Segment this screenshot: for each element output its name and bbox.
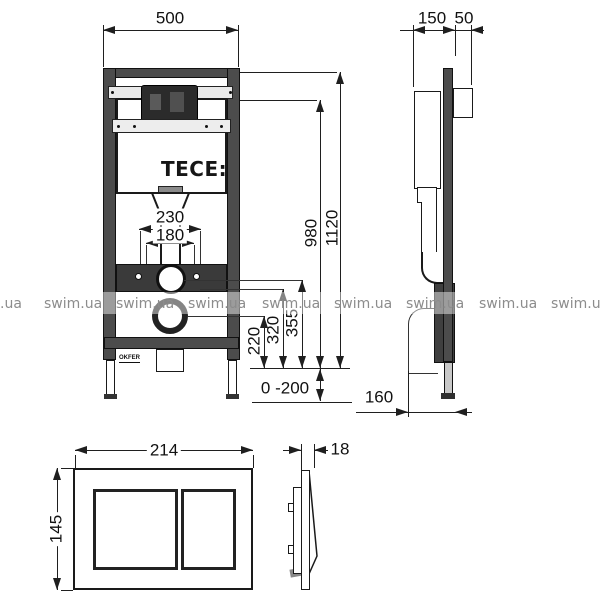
wall-bracket-box xyxy=(453,88,473,118)
arrowhead-left-icon xyxy=(314,446,326,454)
extension-line xyxy=(253,455,254,468)
cistern-neck xyxy=(417,187,437,203)
foot-plate xyxy=(104,394,117,399)
extension-line xyxy=(184,280,302,281)
watermark-text: swim.ua xyxy=(406,296,464,312)
watermark-text: swim.ua xyxy=(188,296,246,312)
flush-mechanism-detail xyxy=(150,94,161,110)
watermark-text: swim.ua xyxy=(116,296,174,312)
frame-left-rail xyxy=(103,68,116,360)
extension-line xyxy=(301,444,302,470)
frame-bottom-bar xyxy=(104,337,239,349)
foot-plate xyxy=(441,393,455,399)
brand-logo: TECE: xyxy=(161,157,227,181)
adjustable-leg-side xyxy=(444,362,453,395)
fixing-bolt-hole xyxy=(193,273,200,280)
arrowhead-up-icon xyxy=(336,72,344,84)
arrowhead-up-icon xyxy=(316,369,324,381)
arrowhead-down-icon xyxy=(260,356,268,368)
arrowhead-left-icon xyxy=(103,26,115,34)
dim-depth-label: 150 xyxy=(418,10,446,27)
screw-dot xyxy=(220,125,223,128)
fixing-bolt-hole xyxy=(135,273,142,280)
arrowhead-down-icon xyxy=(316,389,324,401)
extension-line xyxy=(200,289,283,290)
dim-plate-width-label: 214 xyxy=(147,442,181,459)
arrowhead-right-icon xyxy=(226,26,238,34)
dim-fixing-outer-label: 230 xyxy=(153,209,187,226)
arrowhead-up-icon xyxy=(298,280,306,292)
dim-width-label: 500 xyxy=(156,10,184,27)
dim-plate-height-label: 145 xyxy=(48,512,65,546)
adjustable-leg-left xyxy=(106,360,115,396)
arrowhead-down-icon xyxy=(279,356,287,368)
dim-upper-height-label: 980 xyxy=(303,219,320,247)
extension-line xyxy=(413,25,414,87)
dim-base-depth-label: 160 xyxy=(365,389,393,406)
extension-line xyxy=(61,590,73,591)
arrowhead-up-icon xyxy=(316,100,324,112)
reference-line xyxy=(250,368,350,369)
extension-line xyxy=(188,316,264,317)
frame-top-bar xyxy=(103,68,240,78)
screw-dot xyxy=(133,125,136,128)
extension-line xyxy=(408,371,409,417)
flush-pipe-side xyxy=(421,202,437,252)
certification-mark: OKFER xyxy=(119,355,140,363)
dim-front-offset-label: 50 xyxy=(455,10,474,27)
extension-line xyxy=(471,25,472,85)
extension-line xyxy=(61,468,73,469)
dim-fixing-inner-label: 180 xyxy=(153,227,187,244)
flush-mechanism-detail xyxy=(170,92,184,112)
arrowhead-down-icon xyxy=(298,356,306,368)
extension-line xyxy=(238,25,239,67)
dim-plate-thickness-label: 18 xyxy=(331,441,350,458)
extension-line xyxy=(75,455,76,468)
flush-button-small xyxy=(181,489,236,570)
dim-supply-height-label: 320 xyxy=(265,316,282,344)
arrowhead-right-icon xyxy=(396,408,408,416)
flush-button-large xyxy=(93,489,178,570)
arrowhead-up-icon xyxy=(53,468,61,480)
screw-dot xyxy=(229,91,232,94)
arrowhead-down-icon xyxy=(53,578,61,590)
floor-line xyxy=(252,402,352,403)
arrowhead-right-icon xyxy=(289,446,301,454)
plate-clip xyxy=(288,503,294,512)
arrowhead-right-icon xyxy=(241,446,253,454)
watermark-text: swim.ua xyxy=(551,296,600,312)
dimension-line xyxy=(103,30,238,31)
extension-line xyxy=(240,72,337,73)
watermark-text: swim.ua xyxy=(479,296,537,312)
dim-leg-adjustment-label: 0 -200 xyxy=(261,380,309,397)
flush-bend-outlet xyxy=(156,264,186,294)
arrowhead-left-icon xyxy=(455,408,467,416)
dim-drain-height-label: 220 xyxy=(246,327,263,355)
plate-clip xyxy=(288,545,294,554)
arrowhead-down-icon xyxy=(336,356,344,368)
watermark-text: swim.ua xyxy=(262,296,320,312)
technical-drawing-canvas: 500 TECE: 230 180 xyxy=(0,0,600,600)
frame-side-rail xyxy=(443,68,453,362)
watermark-text: .ua xyxy=(0,296,22,312)
cistern-side-profile xyxy=(414,91,441,189)
arrowhead-left-icon xyxy=(75,446,87,454)
extension-line xyxy=(240,100,317,101)
plate-front-profile xyxy=(301,470,310,590)
drain-elbow-housing xyxy=(156,349,184,372)
watermark-text: swim.ua xyxy=(44,296,102,312)
dim-total-height-label: 1120 xyxy=(324,210,341,247)
arrowhead-down-icon xyxy=(316,356,324,368)
adjustable-leg-right xyxy=(228,360,237,396)
foot-plate xyxy=(226,394,239,399)
screw-dot xyxy=(205,125,208,128)
watermark-text: swim.ua xyxy=(334,296,392,312)
screw-dot xyxy=(117,125,120,128)
screw-dot xyxy=(111,91,114,94)
hanger-crossrail xyxy=(112,119,231,133)
